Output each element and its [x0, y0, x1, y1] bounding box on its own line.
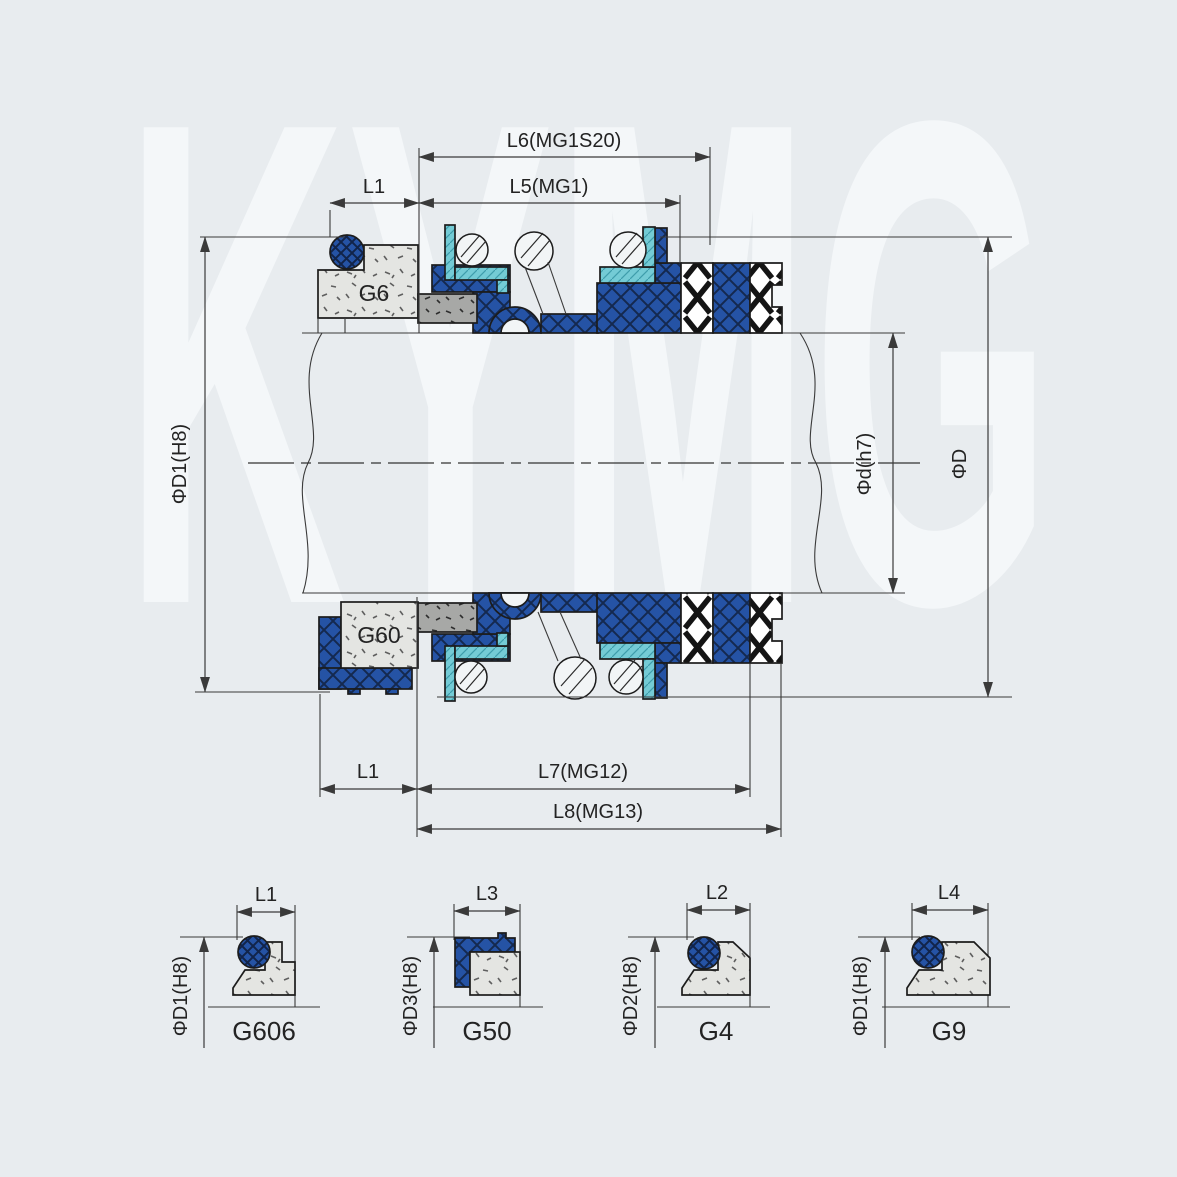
- detail-g50-dia-label: ΦD3(H8): [400, 956, 422, 1036]
- detail-view-g50: L3 ΦD3(H8) G50: [400, 883, 543, 1048]
- spring-coil: [610, 232, 646, 268]
- detail-g606-length-label: L1: [255, 884, 277, 906]
- o-ring-upper: [330, 235, 364, 269]
- detail-view-g9: L4 ΦD1(H8) G9: [850, 882, 1010, 1048]
- detail-g50-length-label: L3: [476, 883, 498, 905]
- detail-g9-name: G9: [932, 1016, 967, 1046]
- technical-drawing-svg: KYMG: [0, 0, 1177, 1177]
- dim-l1-top-label: L1: [363, 176, 385, 198]
- retainer-left-leg: [455, 646, 508, 659]
- dim-shaft-dia-label: Φd(h7): [854, 433, 876, 496]
- dim-outer-dia-label: ΦD: [949, 449, 971, 479]
- detail-g50-seat: [470, 952, 520, 995]
- dim-l5-label: L5(MG1): [510, 176, 589, 198]
- upper-drive-bands: [681, 263, 782, 333]
- dim-l6-label: L6(MG1S20): [507, 130, 622, 152]
- spring-coil: [456, 234, 488, 266]
- retainer-left-foot: [497, 633, 508, 646]
- seat-g6-label: G6: [359, 280, 390, 306]
- detail-g50-name: G50: [462, 1016, 511, 1046]
- detail-g4-length-label: L2: [706, 882, 728, 904]
- lower-drive-bands: [681, 593, 782, 663]
- spring-band-blue: [713, 593, 750, 663]
- detail-g9-o-ring: [912, 936, 944, 968]
- detail-g606-o-ring: [238, 936, 270, 968]
- dim-l8-label: L8(MG13): [553, 801, 643, 823]
- spring-band-white: [681, 263, 713, 333]
- detail-g606-dia-label: ΦD1(H8): [170, 956, 192, 1036]
- spring-coil: [554, 657, 596, 699]
- spring-band-blue: [713, 263, 750, 333]
- drive-ring-lower: [418, 603, 477, 632]
- spring-coil: [609, 660, 643, 694]
- detail-g4-name: G4: [699, 1016, 734, 1046]
- retainer-left-foot: [497, 280, 508, 293]
- retainer-right-leg: [600, 643, 655, 659]
- retainer-right-stem: [643, 659, 655, 699]
- spring-coil: [515, 232, 553, 270]
- spring-coil: [455, 661, 487, 693]
- detail-view-g606: L1 ΦD1(H8) G606: [170, 884, 320, 1048]
- detail-g9-length-label: L4: [938, 882, 960, 904]
- detail-g606-name: G606: [232, 1016, 296, 1046]
- retainer-left-stem: [445, 225, 455, 280]
- mechanical-seal-drawing: KYMG: [0, 0, 1177, 1177]
- watermark-text: KYMG: [123, 0, 1053, 749]
- spring-band-white: [681, 593, 713, 663]
- detail-g4-o-ring: [688, 937, 720, 969]
- seat-g60-label: G60: [357, 622, 400, 648]
- detail-g9-dia-label: ΦD1(H8): [850, 956, 872, 1036]
- dim-d1-label: ΦD1(H8): [169, 424, 191, 504]
- retainer-left-stem: [445, 646, 455, 701]
- drive-ring-upper: [418, 294, 477, 323]
- retainer-right-leg: [600, 267, 655, 283]
- retainer-left-leg: [455, 267, 508, 280]
- detail-view-g4: L2 ΦD2(H8) G4: [620, 882, 770, 1048]
- detail-g4-dia-label: ΦD2(H8): [620, 956, 642, 1036]
- dim-l1-bottom-label: L1: [357, 761, 379, 783]
- dim-l7-label: L7(MG12): [538, 761, 628, 783]
